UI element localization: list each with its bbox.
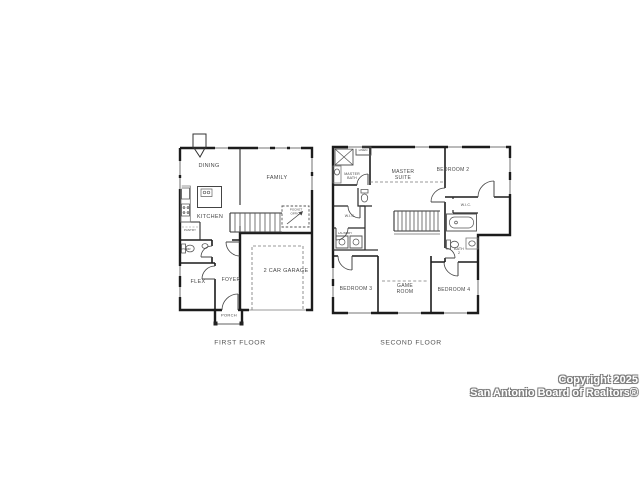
bath2-sink-icon [466, 238, 478, 249]
room-label-bedroom-3: BEDROOM 3 [340, 287, 373, 293]
room-label-wic-bedroom-2: W.I.C. [461, 203, 471, 207]
room-label-master-suite: MASTER SUITE [392, 170, 415, 182]
fireplace-icon [193, 134, 206, 157]
kitchen-island [198, 187, 222, 208]
kitchen-counter [181, 186, 191, 222]
copyright-line2: San Antonio Board of Realtors® [470, 387, 638, 400]
room-label-pantry: PANTRY [184, 229, 196, 233]
master-toilet-icon [361, 190, 368, 203]
first-floor-doors [201, 242, 240, 310]
stairs-icon-second [394, 211, 440, 234]
second-floor-doors [336, 174, 494, 276]
room-label-wic-master: W.I.C. [345, 214, 355, 218]
room-label-master-bath: MASTER BATH [344, 172, 360, 180]
copyright-line1: Copyright 2025 [470, 374, 638, 387]
first-floor-caption: FIRST FLOOR [214, 340, 265, 347]
garage-parking-dashed [252, 246, 303, 310]
room-label-kitchen: KITCHEN [197, 214, 223, 220]
porch-edge [214, 322, 244, 326]
floor-plans-drawing [0, 0, 640, 480]
room-label-family: FAMILY [267, 175, 288, 181]
room-label-foyer: FOYER [222, 278, 241, 284]
room-label-linen: LINEN [359, 149, 368, 153]
room-label-flex: FLEX [191, 279, 206, 285]
powder-sink-icon [202, 244, 208, 249]
second-floor-caption: SECOND FLOOR [380, 340, 442, 347]
room-label-bath-2: BATH 2 [454, 247, 464, 255]
stairs-icon [230, 213, 282, 232]
room-label-bedroom-2: BEDROOM 2 [437, 168, 470, 174]
shower-icon [335, 149, 353, 165]
room-label-game-room: GAME ROOM [397, 284, 414, 296]
washer-dryer-icons [336, 236, 362, 248]
room-label-pocket-office: POCKET OFFICE [290, 208, 302, 215]
room-label-bedroom-4: BEDROOM 4 [438, 288, 471, 294]
room-label-porch: PORCH [221, 314, 237, 319]
bathtub-icon [447, 214, 477, 231]
copyright-watermark: Copyright 2025 San Antonio Board of Real… [470, 374, 638, 400]
floorplan-image: DINING FAMILY KITCHEN PANTRY PWDR POCKET… [0, 0, 640, 480]
room-label-dining: DINING [198, 163, 219, 169]
room-label-laundry: LAUNDRY [338, 232, 352, 236]
room-label-powder: PWDR [181, 248, 190, 252]
room-label-garage: 2 CAR GARAGE [264, 268, 309, 274]
